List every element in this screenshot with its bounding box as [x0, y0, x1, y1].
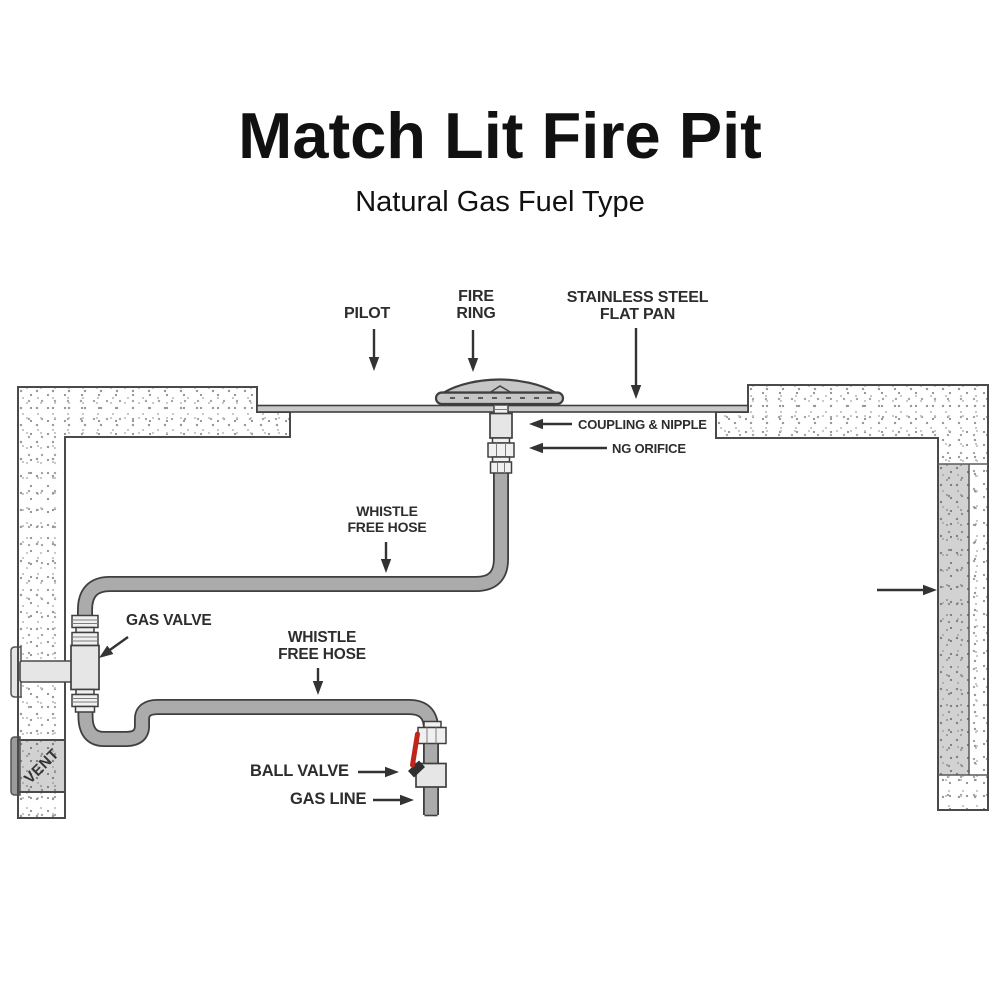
upper-hose	[85, 400, 501, 618]
label-fire-ring: FIRE RING	[446, 288, 506, 322]
fire-pit-diagram: Match Lit Fire Pit Natural Gas Fuel Type	[0, 0, 1000, 1000]
fire-ring	[436, 380, 563, 405]
label-ball-valve: BALL VALVE	[250, 762, 349, 781]
diagram-line-art	[0, 0, 1000, 1000]
label-stainless-steel-flat-pan: STAINLESS STEEL FLAT PAN	[555, 289, 720, 323]
label-ng-orifice: NG ORIFICE	[612, 441, 686, 456]
label-whistle-free-hose-top: WHISTLE FREE HOSE	[344, 504, 430, 535]
valve-key-bar	[20, 661, 73, 682]
right-wall-outline	[716, 385, 988, 810]
label-pilot: PILOT	[344, 305, 390, 323]
label-whistle-free-hose-bottom: WHISTLE FREE HOSE	[272, 629, 372, 663]
label-gas-valve: GAS VALVE	[126, 612, 211, 630]
label-gas-line: GAS LINE	[290, 790, 366, 809]
gas-valve-assembly	[71, 616, 99, 713]
label-coupling-nipple: COUPLING & NIPPLE	[578, 417, 707, 432]
